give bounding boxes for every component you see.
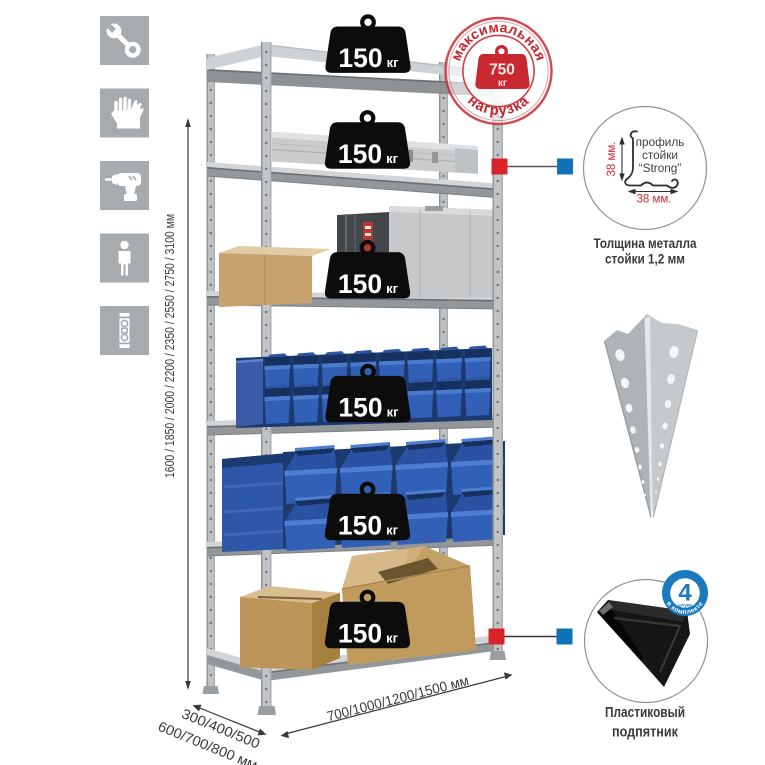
svg-text:стойки: стойки: [642, 148, 678, 162]
svg-text:“Strong”: “Strong”: [639, 161, 682, 175]
svg-text:Пластиковый: Пластиковый: [605, 705, 685, 721]
svg-text:38 мм.: 38 мм.: [606, 142, 618, 177]
svg-text:профиль: профиль: [636, 135, 685, 149]
svg-text:Толщина металла: Толщина металла: [594, 235, 697, 251]
svg-text:750: 750: [489, 62, 515, 79]
svg-text:1600 / 1850 / 2000 / 2200 / 23: 1600 / 1850 / 2000 / 2200 / 2350 / 2550 …: [162, 214, 177, 478]
svg-text:стойки 1,2 мм: стойки 1,2 мм: [605, 251, 685, 267]
svg-text:штуки: штуки: [678, 603, 692, 608]
svg-text:кг: кг: [498, 78, 507, 89]
svg-text:подпятник: подпятник: [612, 725, 679, 741]
svg-text:38 мм.: 38 мм.: [637, 194, 672, 206]
